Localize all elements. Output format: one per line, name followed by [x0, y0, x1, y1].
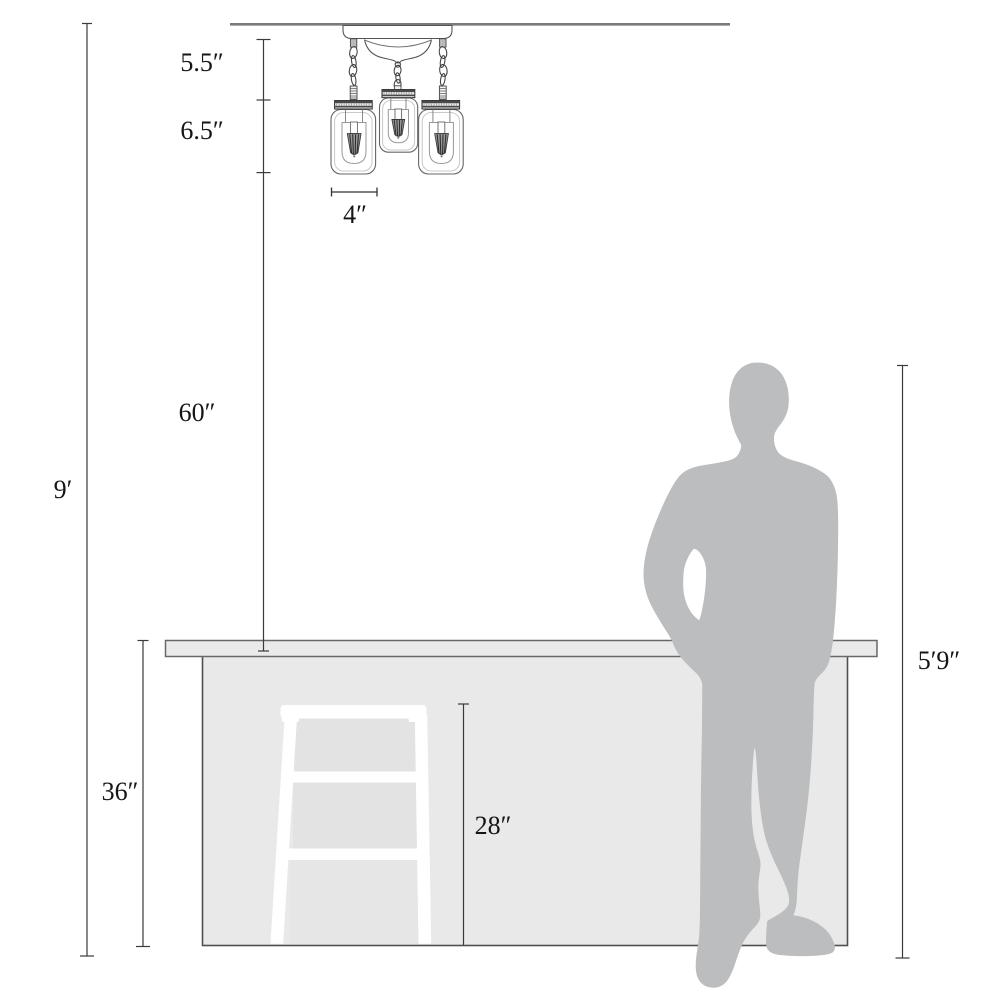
svg-text:36″: 36″	[102, 777, 139, 806]
svg-text:9′: 9′	[54, 475, 73, 504]
svg-text:60″: 60″	[179, 398, 216, 427]
svg-text:6.5″: 6.5″	[180, 116, 223, 145]
svg-text:28″: 28″	[475, 811, 512, 840]
svg-text:4″: 4″	[343, 200, 367, 229]
svg-text:5′9″: 5′9″	[918, 646, 961, 675]
svg-text:5.5″: 5.5″	[180, 48, 223, 77]
